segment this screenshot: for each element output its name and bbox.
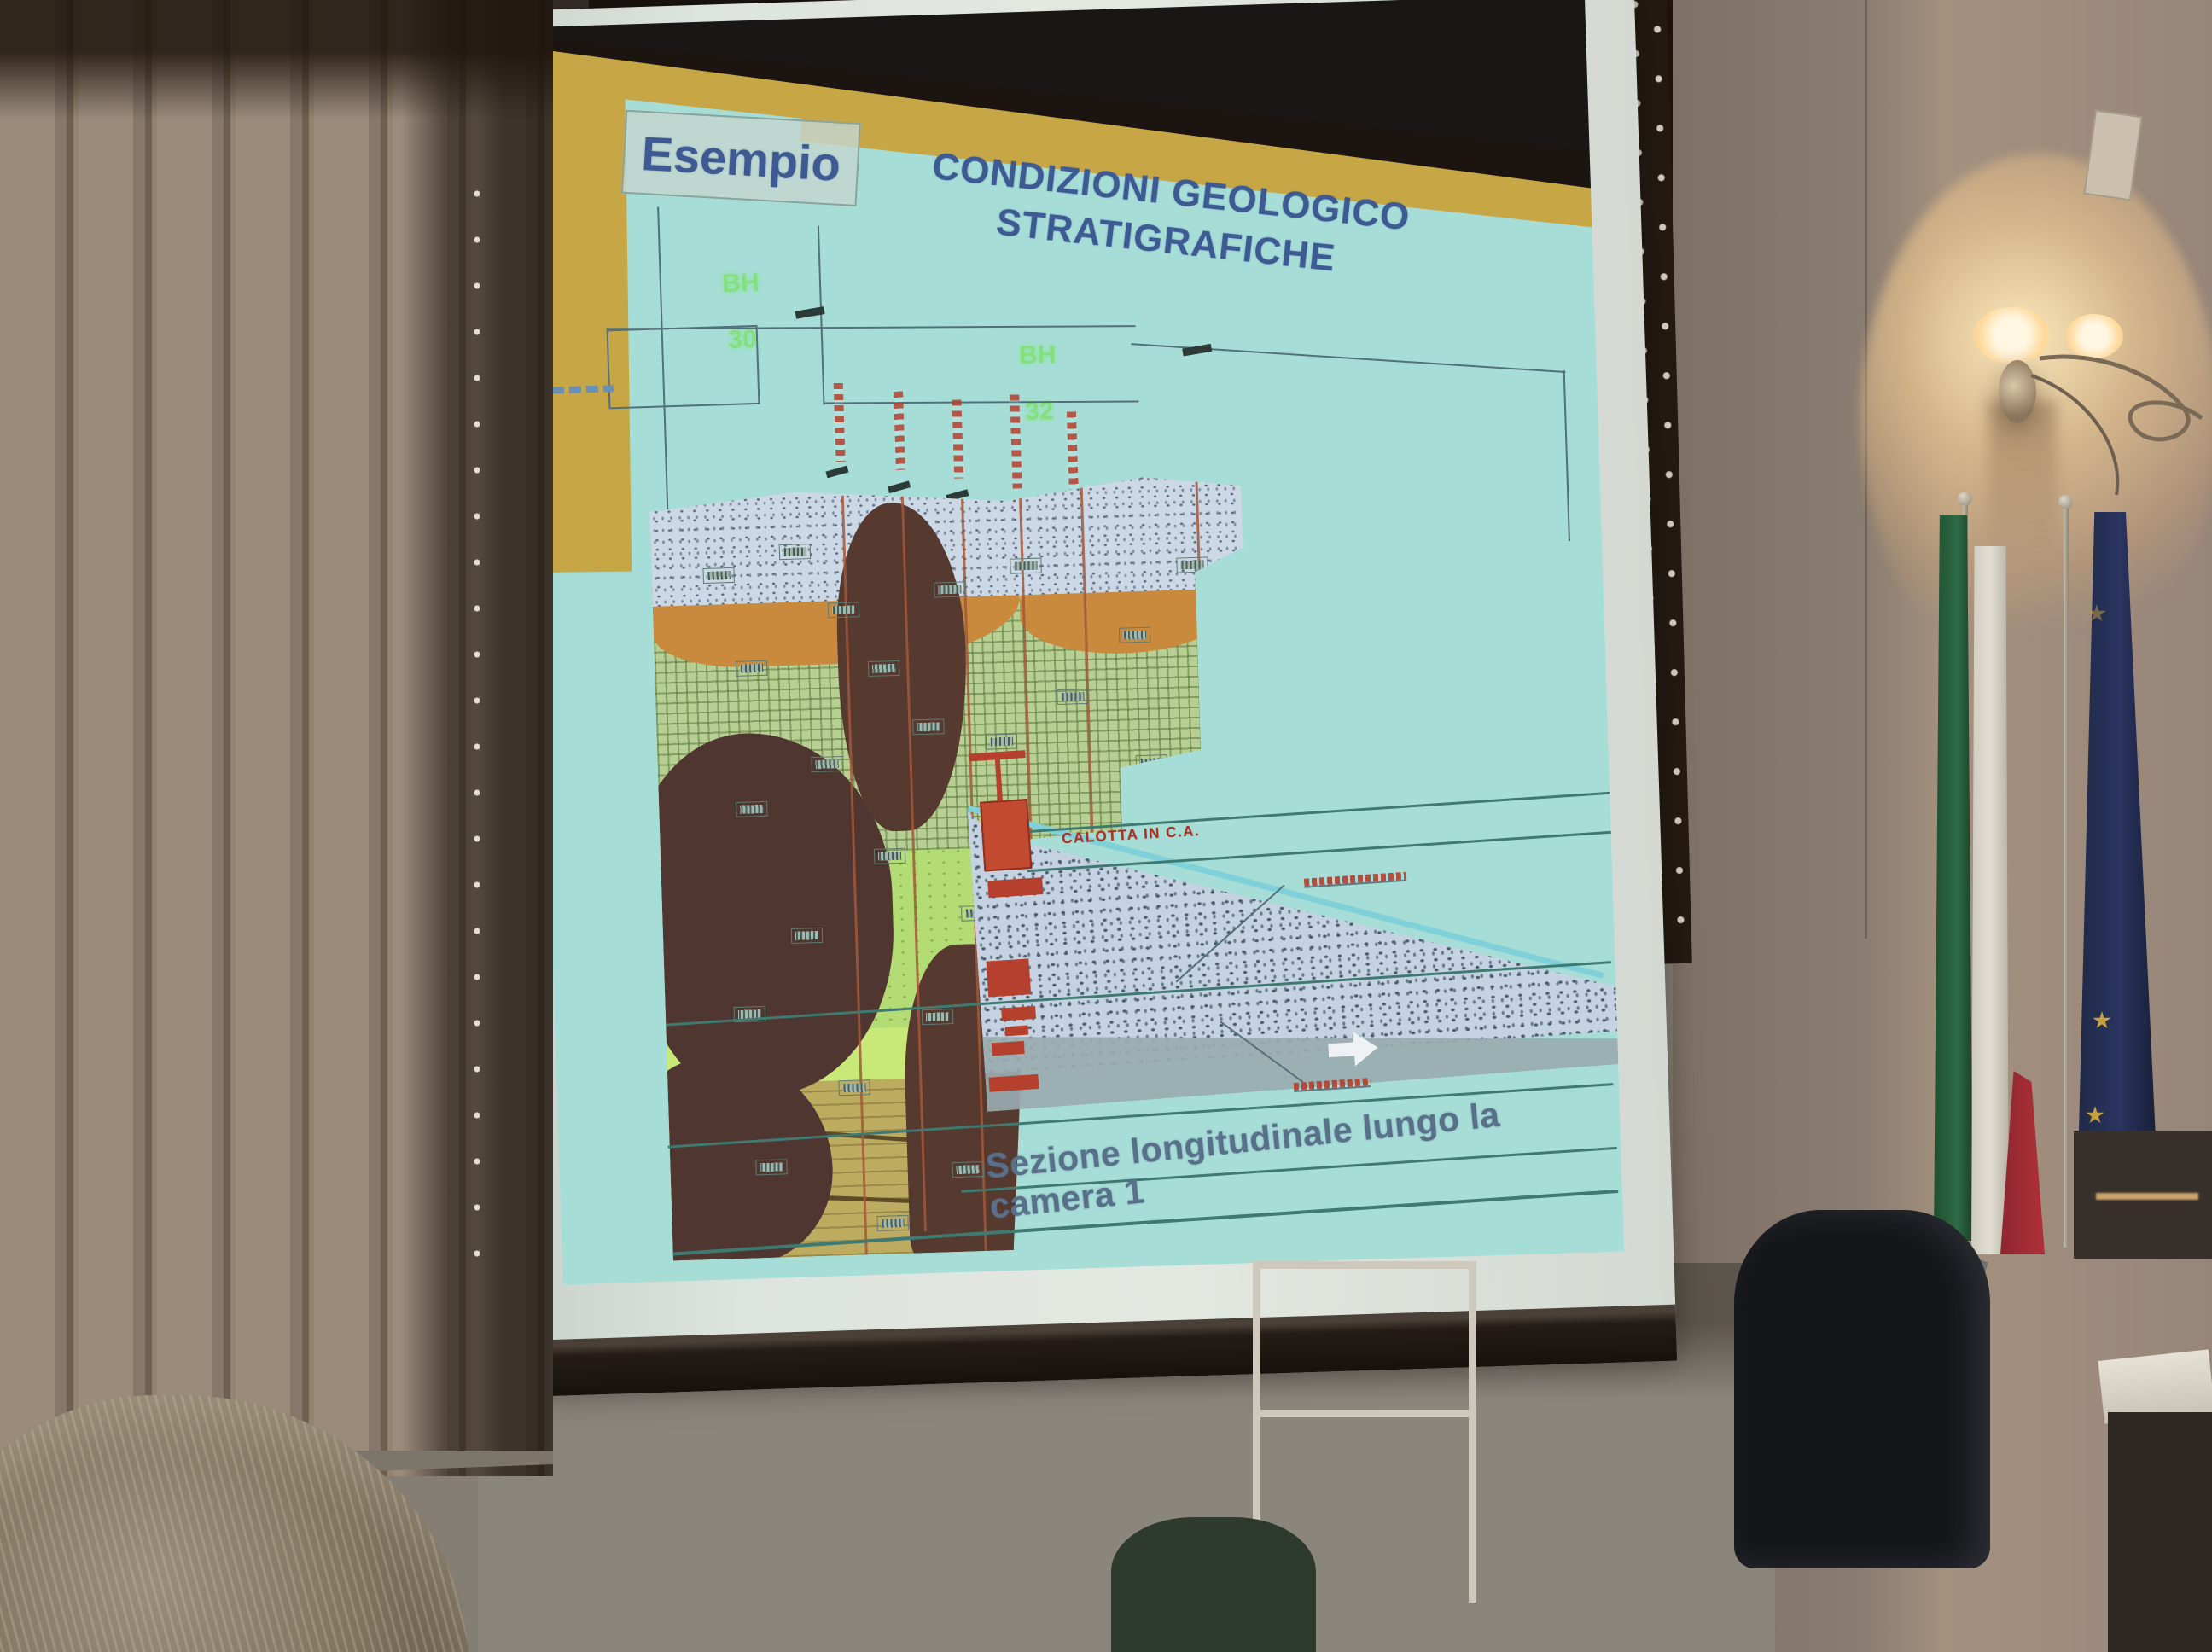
- calotta-footing: [987, 877, 1043, 898]
- office-chair: [1734, 1210, 1990, 1568]
- borehole-log: [952, 399, 963, 478]
- flagpole-finial: [1958, 492, 1972, 506]
- wall-lamp-cables: [2031, 341, 2212, 512]
- strata-code-chip: [874, 848, 906, 864]
- eu-flagpole: [2064, 509, 2069, 1248]
- survey-tick: [1182, 344, 1212, 357]
- strata-code-chip: [838, 1079, 870, 1096]
- invert-structure: [1001, 1006, 1036, 1021]
- strata-code-chip: [828, 602, 860, 618]
- survey-line: [1563, 370, 1570, 541]
- strata-code-chip: [876, 1215, 909, 1231]
- invert-structure: [1005, 1026, 1029, 1037]
- survey-line: [823, 401, 1138, 404]
- borehole-tick: [825, 466, 848, 479]
- strata-code-chip: [736, 801, 768, 817]
- chair-backrest: [1111, 1517, 1316, 1652]
- example-label: Esempio: [640, 125, 842, 191]
- italy-flag: [1971, 546, 2009, 1254]
- annotation-red-text: [1304, 872, 1406, 888]
- strata-code-chip: [934, 581, 966, 597]
- calotta-structure: [980, 799, 1032, 872]
- example-label-box: Esempio: [621, 110, 861, 206]
- conference-room-photo: CONDIZIONI GEOLOGICO STRATIGRAFICHE Esem…: [0, 0, 2212, 1652]
- audience-head: [553, 1333, 894, 1652]
- side-table-base: [2108, 1412, 2212, 1652]
- structure-line: [818, 226, 825, 405]
- strata-code-chip: [868, 660, 900, 677]
- strata-code-chip: [922, 1009, 954, 1025]
- strata-code-chip: [1119, 627, 1151, 643]
- borehole-log: [834, 383, 846, 462]
- borehole-tick: [888, 480, 911, 493]
- stratum-gravel-fill: [649, 463, 1463, 607]
- strata-code-chip: [779, 544, 812, 560]
- strata-code-chip: [736, 660, 768, 677]
- strata-code-chip: [1010, 558, 1042, 574]
- projection-screen: CONDIZIONI GEOLOGICO STRATIGRAFICHE Esem…: [494, 0, 1677, 1397]
- strata-code-chip: [811, 756, 843, 772]
- strata-code-chip: [986, 734, 1018, 750]
- metal-shelf: [1253, 1410, 1476, 1417]
- invert-structure: [986, 958, 1031, 997]
- projected-slide: CONDIZIONI GEOLOGICO STRATIGRAFICHE Esem…: [523, 0, 1624, 1285]
- strata-code-chip: [791, 928, 824, 944]
- borehole-log: [1067, 411, 1079, 490]
- vertical-blinds: [0, 0, 553, 1476]
- strata-code-chip: [755, 1159, 788, 1175]
- italy-flag: [1934, 515, 1973, 1241]
- structure-outline-box: [607, 325, 760, 410]
- strata-code-chip: [912, 718, 945, 735]
- strata-code-chip: [1057, 689, 1089, 705]
- flagpole-finial: [2058, 495, 2073, 509]
- strata-code-chip: [1176, 556, 1208, 573]
- strata-code-chip: [702, 567, 735, 584]
- invert-structure: [992, 1041, 1025, 1056]
- cabinet-glint: [2096, 1193, 2198, 1200]
